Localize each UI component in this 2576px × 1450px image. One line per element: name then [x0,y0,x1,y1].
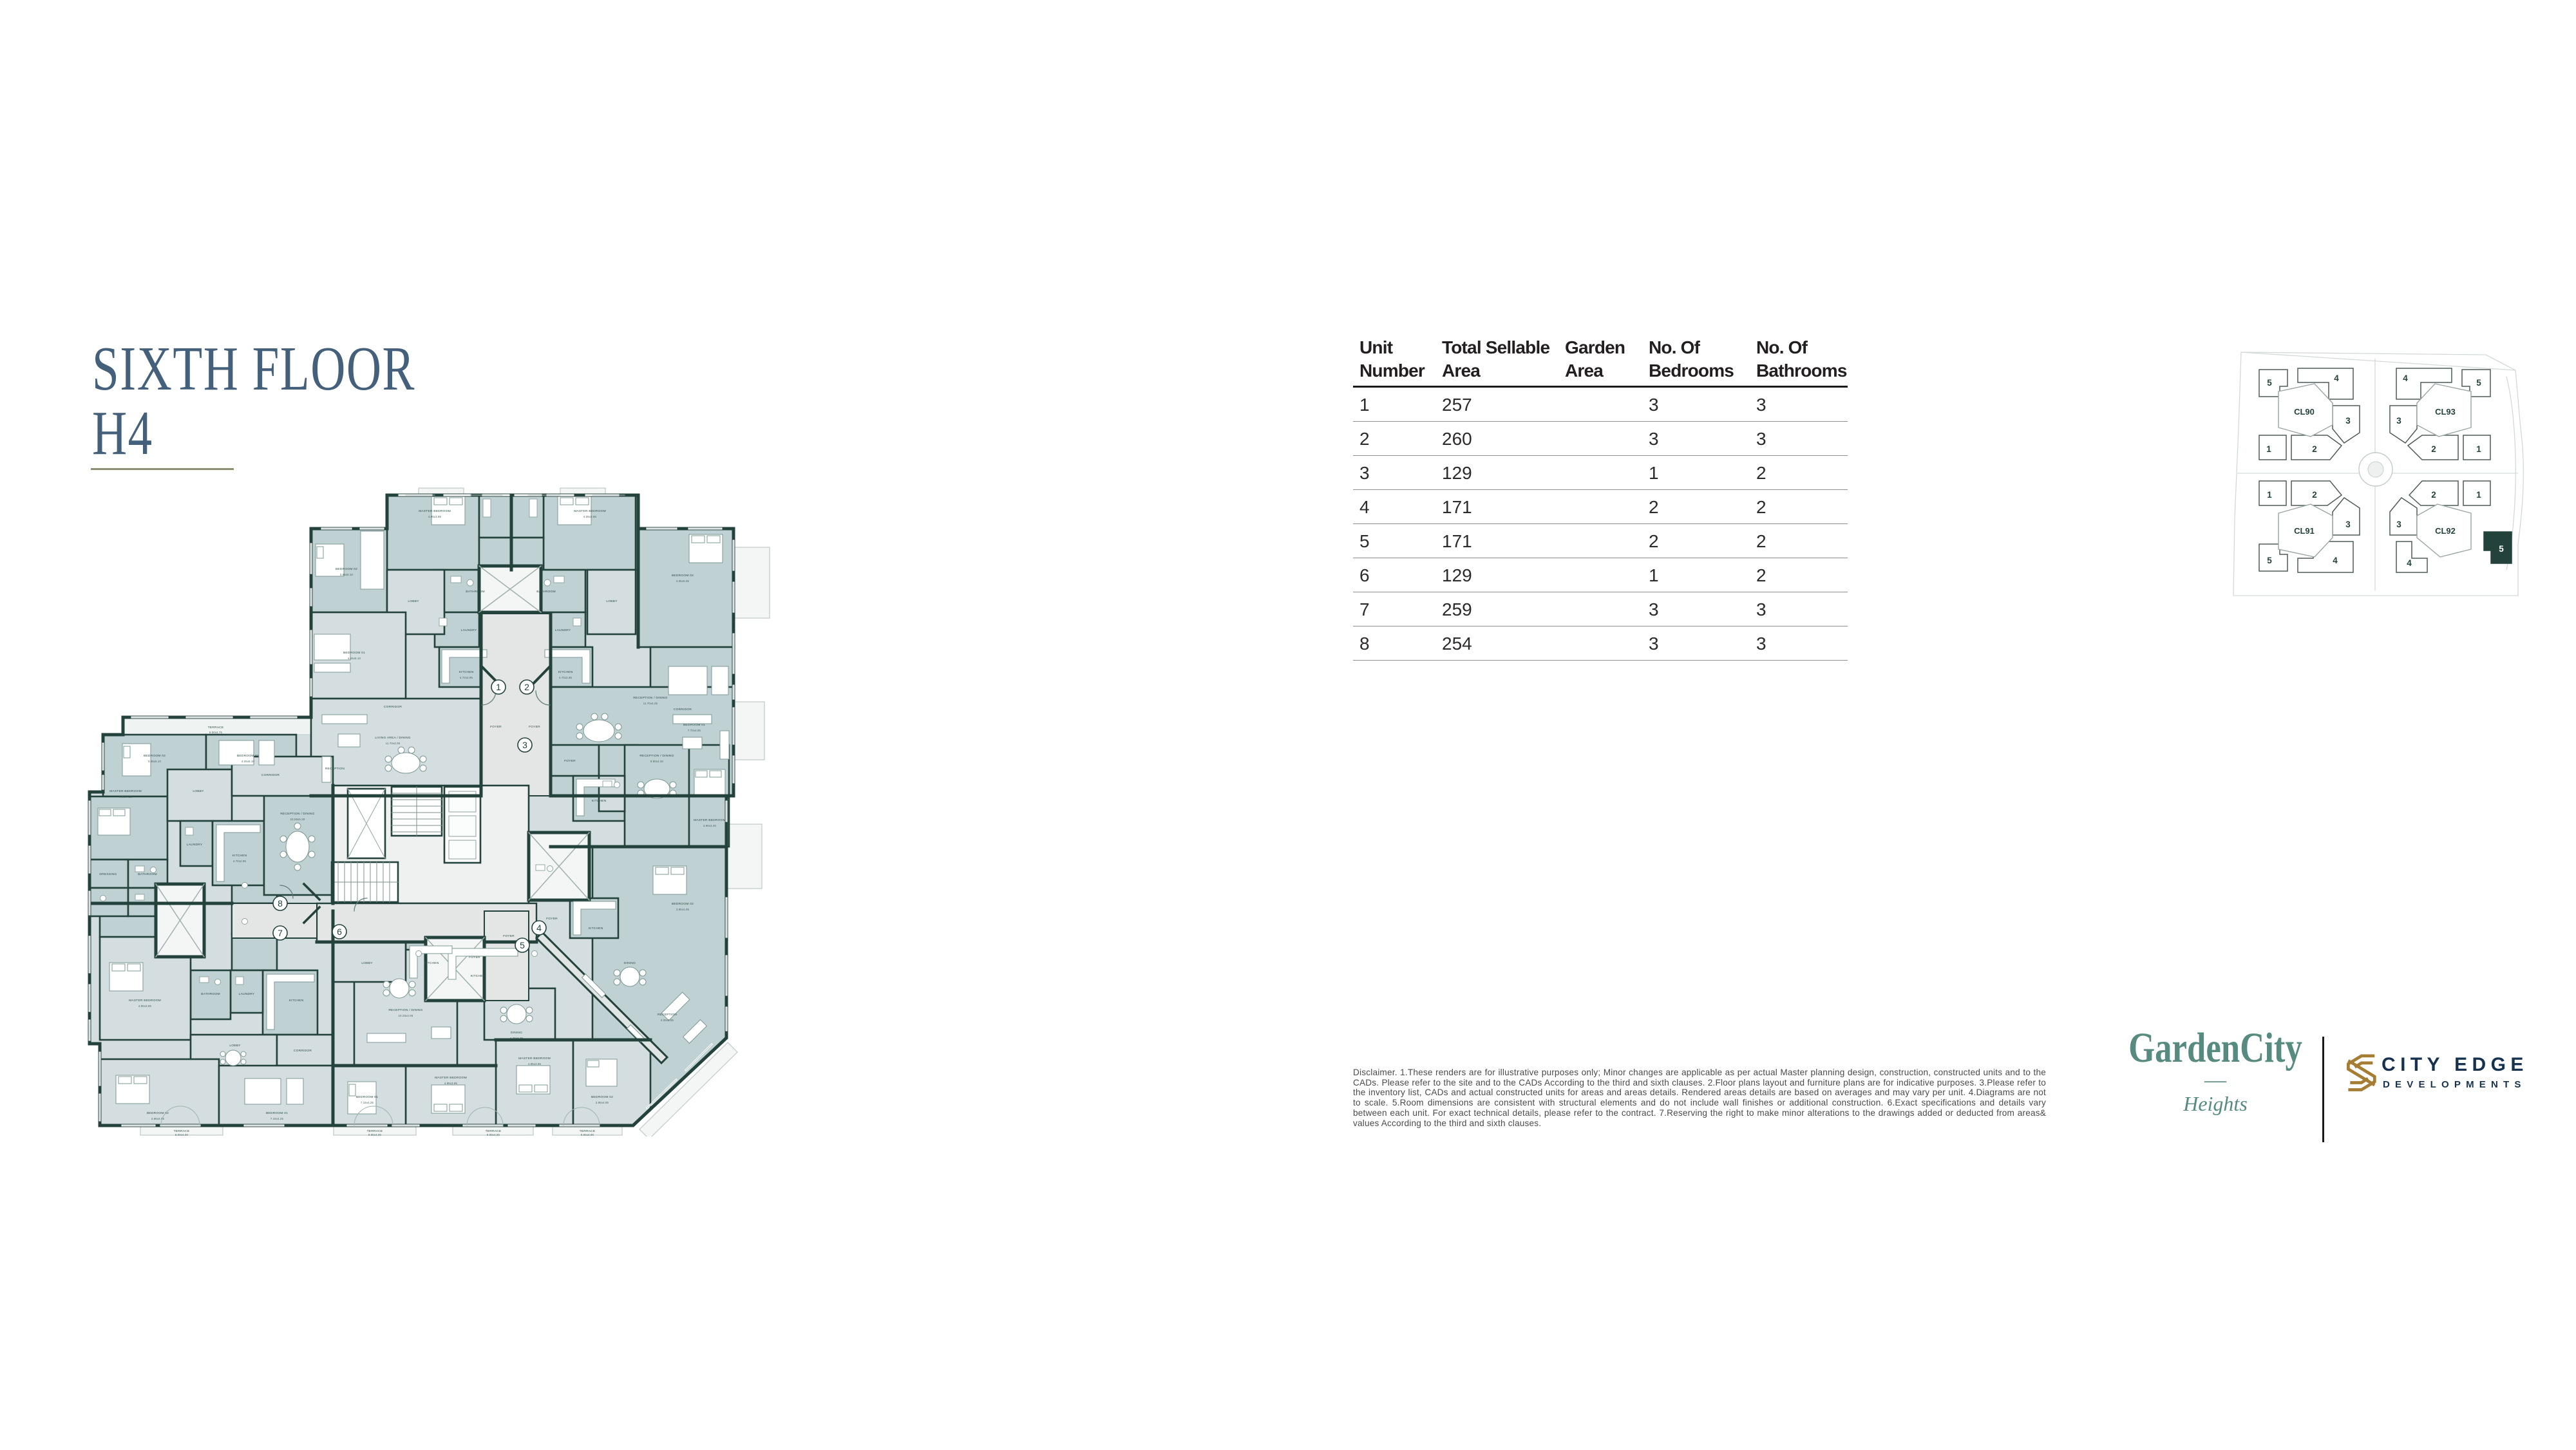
svg-text:1: 1 [2476,444,2481,454]
svg-text:FOYER: FOYER [490,725,502,729]
svg-text:4.05x5.05: 4.05x5.05 [676,579,690,583]
svg-text:3: 3 [2396,416,2401,426]
svg-text:4.70x2.95: 4.70x2.95 [460,676,473,679]
svg-text:KITCHEN: KITCHEN [424,961,439,965]
svg-text:3.95x4.05: 3.95x4.05 [596,1101,609,1104]
svg-text:MASTER BEDROOM: MASTER BEDROOM [518,1057,551,1060]
svg-text:5: 5 [2267,378,2272,388]
svg-text:DINING: DINING [511,1031,522,1035]
svg-text:LOBBY: LOBBY [229,1044,241,1048]
svg-text:2: 2 [2431,490,2436,500]
svg-text:5: 5 [2476,378,2481,388]
svg-text:6: 6 [337,927,342,937]
svg-text:4.25x5.10: 4.25x5.10 [348,657,361,660]
svg-text:5: 5 [520,940,525,950]
svg-text:CORRIDOR: CORRIDOR [384,705,402,709]
svg-text:7.70x4.05: 7.70x4.05 [688,729,701,732]
svg-text:MASTER BEDROOM: MASTER BEDROOM [109,789,142,793]
svg-text:DINING: DINING [624,961,636,965]
svg-text:4.25x5.10: 4.25x5.10 [241,760,255,763]
svg-text:3: 3 [522,740,527,750]
svg-text:LAUNDRY: LAUNDRY [187,843,203,847]
svg-text:LAUNDRY: LAUNDRY [555,628,571,632]
svg-text:LOBBY: LOBBY [408,599,419,603]
svg-text:KITCHEN: KITCHEN [232,854,247,858]
svg-text:2: 2 [2312,490,2317,500]
svg-text:11.70x4.05: 11.70x4.05 [386,742,401,745]
svg-text:RECEPTION / DINING: RECEPTION / DINING [388,1008,422,1012]
svg-text:LOBBY: LOBBY [361,961,373,965]
svg-text:CL92: CL92 [2435,526,2456,536]
svg-text:5: 5 [2267,556,2272,565]
svg-text:BEDROOM 01: BEDROOM 01 [683,723,705,727]
svg-text:KITCHEN: KITCHEN [289,999,304,1003]
svg-text:MASTER BEDROOM: MASTER BEDROOM [694,818,726,822]
svg-text:9.00x4.00: 9.00x4.00 [368,1133,382,1136]
svg-text:11.70x4.05: 11.70x4.05 [643,702,658,705]
svg-text:9.00x4.00: 9.00x4.00 [487,1133,500,1136]
svg-text:CL91: CL91 [2294,526,2315,536]
svg-text:2: 2 [524,682,529,692]
svg-text:4.95x3.95: 4.95x3.95 [444,1082,458,1085]
svg-text:RECEPTION / DINING: RECEPTION / DINING [639,754,674,758]
svg-text:3.90x4.40: 3.90x4.40 [703,824,717,827]
svg-text:3: 3 [2396,520,2401,529]
svg-text:KITCHEN: KITCHEN [558,670,573,674]
svg-text:7.15x4.25: 7.15x4.25 [361,1101,374,1104]
svg-text:FOYER: FOYER [546,917,558,921]
svg-text:BEDROOM 02: BEDROOM 02 [672,574,694,578]
svg-text:3: 3 [2345,520,2351,529]
svg-text:4.95x3.95: 4.95x3.95 [528,1062,542,1066]
svg-text:CL93: CL93 [2435,407,2456,417]
svg-text:1: 1 [496,682,501,692]
svg-text:3.95x4.05: 3.95x4.05 [676,908,690,911]
svg-text:BEDROOM 01: BEDROOM 01 [237,754,259,758]
svg-text:3.95x5.10: 3.95x5.10 [148,760,162,763]
svg-text:BATHROOM: BATHROOM [536,590,556,594]
svg-text:4.05x3.95: 4.05x3.95 [428,515,442,518]
svg-text:3: 3 [2345,416,2351,426]
svg-text:BEDROOM 01: BEDROOM 01 [356,1095,378,1099]
svg-text:1: 1 [2266,444,2271,454]
svg-text:KITCHEN: KITCHEN [589,927,603,930]
svg-text:4.70x2.95: 4.70x2.95 [233,860,247,863]
svg-text:8: 8 [278,898,283,909]
svg-text:MASTER BEDROOM: MASTER BEDROOM [419,509,451,513]
svg-text:3.95x5.10: 3.95x5.10 [340,573,354,576]
svg-text:TERRACE: TERRACE [208,726,224,730]
svg-text:4.95x4.15: 4.95x4.15 [119,795,133,798]
svg-text:FOYER: FOYER [469,956,480,959]
svg-text:7.15x4.25: 7.15x4.25 [270,1117,284,1120]
svg-text:7: 7 [278,928,283,938]
svg-text:LAUNDRY: LAUNDRY [461,628,477,632]
svg-text:9.80x4.30: 9.80x4.30 [650,760,664,763]
svg-text:CORRIDOR: CORRIDOR [674,708,692,711]
svg-text:BATHROOM: BATHROOM [201,992,220,996]
svg-text:KITCHEN: KITCHEN [459,670,474,674]
svg-text:9.00x4.00: 9.00x4.00 [175,1133,189,1136]
svg-text:4: 4 [2407,558,2412,568]
svg-text:RECEPTION: RECEPTION [325,767,345,771]
svg-text:KITCHEN: KITCHEN [592,799,607,803]
svg-text:4: 4 [2333,556,2338,565]
svg-text:DRESSING: DRESSING [99,872,117,876]
svg-text:BEDROOM 01: BEDROOM 01 [343,651,365,655]
svg-text:9.00x4.75: 9.00x4.75 [209,731,223,734]
svg-text:9.00x4.00: 9.00x4.00 [581,1133,594,1136]
svg-text:4: 4 [2403,373,2408,383]
svg-text:BEDROOM 02: BEDROOM 02 [336,567,357,571]
svg-text:LOBBY: LOBBY [193,789,204,793]
svg-text:CITY EDGE: CITY EDGE [2382,1054,2528,1075]
svg-text:RECEPTION / DINING: RECEPTION / DINING [280,812,314,816]
svg-text:LIVING AREA / DINING: LIVING AREA / DINING [375,736,410,740]
svg-text:4.70x2.95: 4.70x2.95 [559,676,573,679]
svg-text:LOBBY: LOBBY [606,599,618,603]
svg-text:4: 4 [536,923,542,933]
svg-text:2: 2 [2312,444,2317,454]
svg-text:4: 4 [2334,373,2339,383]
svg-text:BEDROOM 01: BEDROOM 01 [266,1111,288,1115]
svg-text:CORRIDOR: CORRIDOR [294,1049,312,1053]
svg-text:MASTER BEDROOM: MASTER BEDROOM [574,509,606,513]
svg-text:4.95x3.95: 4.95x3.95 [138,1004,152,1008]
svg-text:5: 5 [2499,544,2504,554]
svg-text:CL90: CL90 [2294,407,2315,417]
svg-text:1: 1 [2476,490,2481,500]
svg-text:DEVELOPMENTS: DEVELOPMENTS [2383,1079,2526,1090]
svg-text:RECEPTION: RECEPTION [658,1013,677,1017]
svg-text:BATHROOM: BATHROOM [466,590,485,594]
svg-text:FOYER: FOYER [529,725,540,729]
svg-text:MASTER BEDROOM: MASTER BEDROOM [129,999,161,1003]
svg-text:MASTER BEDROOM: MASTER BEDROOM [435,1076,467,1080]
svg-text:BEDROOM 02: BEDROOM 02 [672,902,694,906]
svg-text:BEDROOM 02: BEDROOM 02 [144,754,166,758]
svg-text:LAUNDRY: LAUNDRY [239,992,255,996]
svg-text:BEDROOM 02: BEDROOM 02 [591,1095,613,1099]
svg-text:10.55x5.30: 10.55x5.30 [290,818,305,821]
svg-text:KITCHEN: KITCHEN [471,974,486,978]
svg-text:RECEPTION / DINING: RECEPTION / DINING [633,696,667,700]
svg-text:BATHROOM: BATHROOM [138,872,157,876]
svg-text:FOYER: FOYER [503,934,515,938]
svg-text:FOYER: FOYER [564,759,576,763]
svg-text:10.25x4.05: 10.25x4.05 [399,1014,413,1017]
svg-text:4.05x3.95: 4.05x3.95 [583,515,597,518]
svg-text:2: 2 [2431,444,2436,454]
svg-text:4.25x3.95: 4.25x3.95 [661,1019,674,1022]
svg-text:1: 1 [2267,490,2272,500]
svg-text:CORRIDOR: CORRIDOR [261,773,279,777]
